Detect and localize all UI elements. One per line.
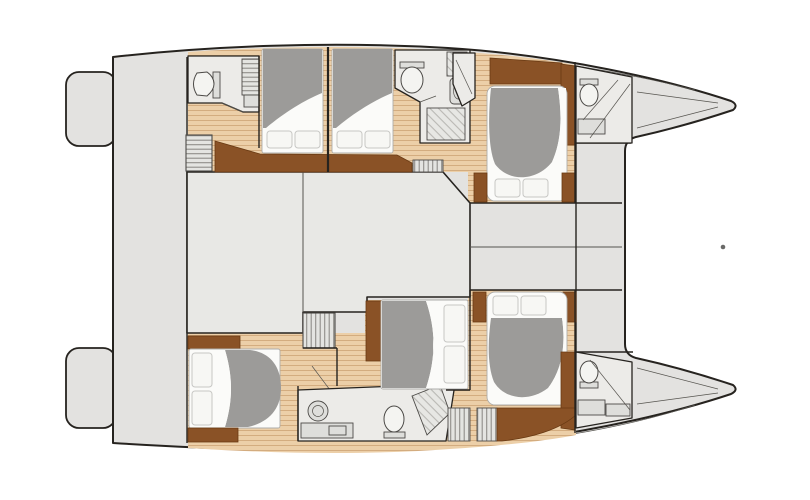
- swim-platform-starboard: [66, 348, 116, 428]
- wardrobe: [366, 301, 381, 361]
- pillow: [365, 131, 390, 148]
- toilet: [194, 72, 215, 96]
- swim-platform-port: [66, 72, 116, 146]
- pillow: [523, 179, 548, 197]
- bed-duvet: [382, 301, 434, 388]
- stairs-starboard: [303, 313, 335, 348]
- cabin-starboard-mid: [366, 290, 470, 390]
- pillow: [444, 346, 465, 383]
- hanging-locker: [477, 408, 497, 441]
- headboard-band: [188, 336, 240, 349]
- shelf-locker: [242, 59, 259, 95]
- toilet-tank: [384, 432, 405, 438]
- toilet: [401, 67, 423, 93]
- deck-plan: [0, 0, 810, 500]
- toilet: [384, 406, 404, 432]
- cabin-port-1: [259, 49, 323, 153]
- pillow: [495, 179, 520, 197]
- head-port-bow: [576, 66, 632, 143]
- soap-tray: [329, 426, 346, 435]
- stairs-port: [186, 135, 212, 171]
- pillow: [493, 296, 518, 315]
- sink: [308, 401, 328, 421]
- toilet: [580, 84, 598, 106]
- nightstand: [473, 292, 486, 322]
- sink-counter: [578, 400, 605, 415]
- head-port-aft: [188, 56, 259, 112]
- forestay-dot: [721, 245, 726, 250]
- pillow: [267, 131, 292, 148]
- pillow: [192, 391, 212, 425]
- hanging-locker: [448, 408, 470, 441]
- nightstand: [474, 173, 487, 202]
- pillow: [295, 131, 320, 148]
- salon-top-locker: [413, 160, 443, 172]
- bed-duvet: [489, 88, 560, 177]
- cabinet: [244, 95, 259, 107]
- sink-counter: [578, 119, 605, 134]
- pillow: [337, 131, 362, 148]
- pillow: [444, 305, 465, 342]
- toilet: [580, 361, 598, 383]
- foot-band: [188, 428, 238, 442]
- pillow: [521, 296, 546, 315]
- foot-band: [490, 58, 562, 84]
- shower-floor: [427, 108, 465, 140]
- cabin-port-2: [332, 49, 393, 153]
- pillow: [192, 353, 212, 387]
- head-starboard-bow: [576, 352, 632, 428]
- nightstand: [562, 173, 575, 202]
